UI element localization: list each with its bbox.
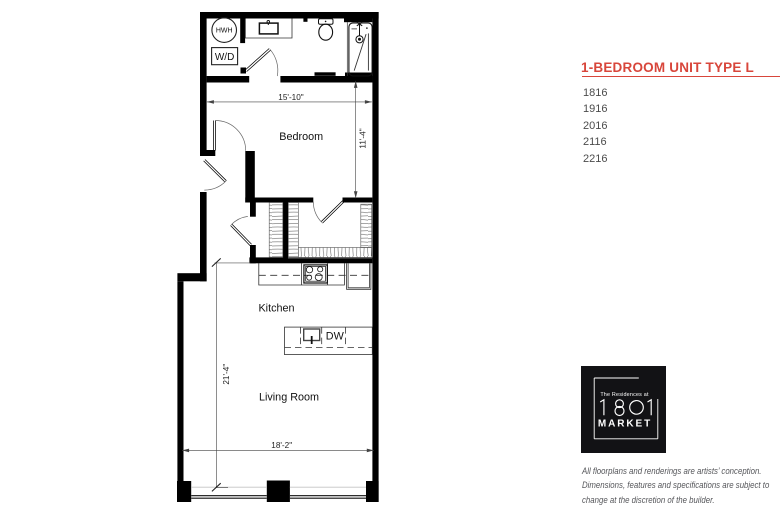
svg-text:21'-4": 21'-4" [222,364,231,385]
svg-text:DW: DW [326,330,345,342]
svg-text:15'-10": 15'-10" [278,93,304,102]
svg-text:HWH: HWH [216,28,233,35]
svg-text:MARKET: MARKET [598,418,652,429]
svg-text:Living Room: Living Room [259,392,319,404]
svg-text:18'-2": 18'-2" [271,441,292,450]
svg-text:W/D: W/D [215,52,234,63]
svg-text:The Residences at: The Residences at [600,392,649,398]
svg-text:Kitchen: Kitchen [258,303,294,315]
svg-text:11'-4": 11'-4" [358,128,367,148]
svg-text:Bedroom: Bedroom [279,131,323,143]
